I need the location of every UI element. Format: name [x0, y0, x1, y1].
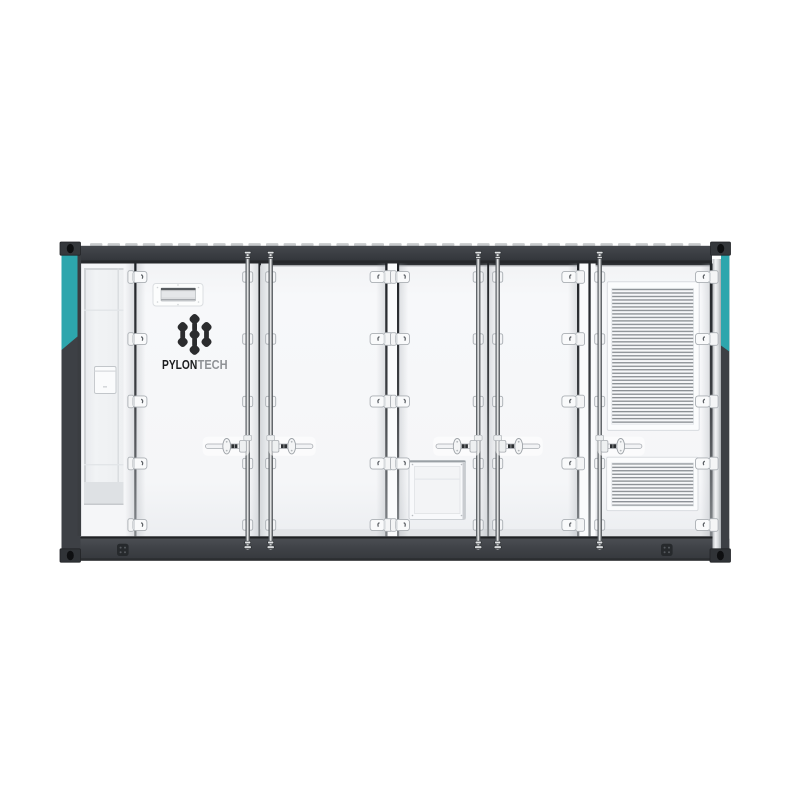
svg-text:TECH: TECH	[198, 357, 228, 372]
svg-text:PYLON: PYLON	[162, 357, 197, 372]
